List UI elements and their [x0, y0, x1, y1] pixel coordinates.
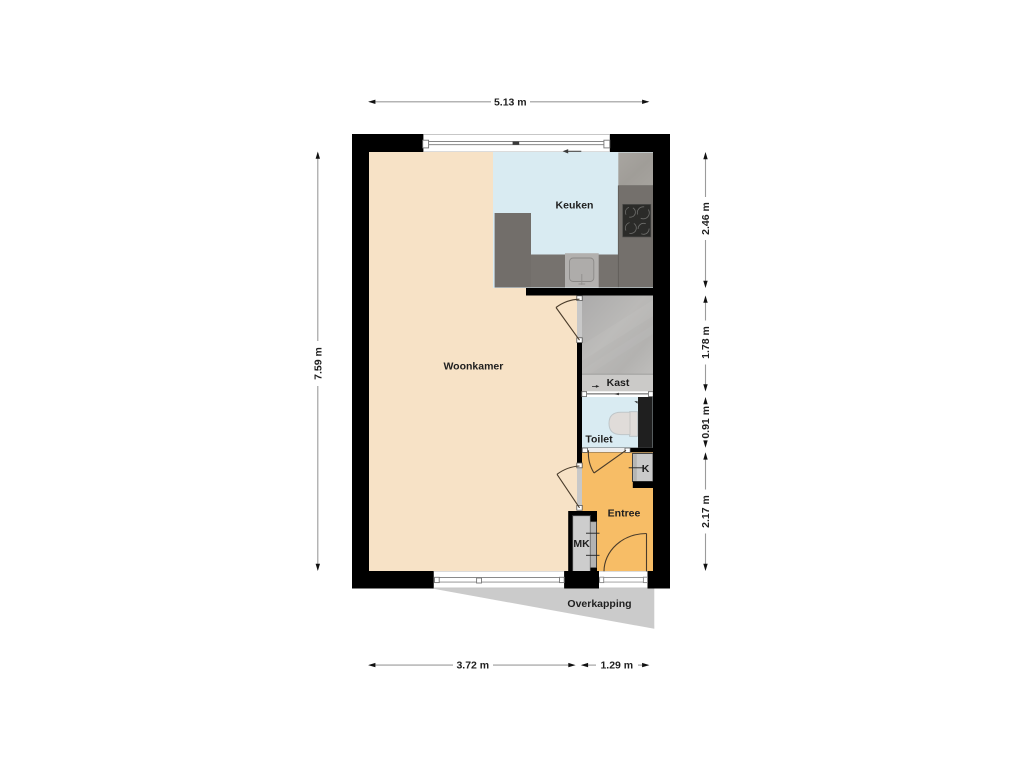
svg-text:Toilet: Toilet [585, 434, 613, 446]
svg-text:1.78 m: 1.78 m [700, 326, 712, 359]
svg-text:MK: MK [573, 538, 590, 550]
svg-text:K: K [642, 463, 650, 475]
svg-text:2.46 m: 2.46 m [700, 202, 712, 235]
svg-text:5.13 m: 5.13 m [494, 96, 527, 108]
svg-text:Kast: Kast [607, 377, 630, 389]
svg-text:Woonkamer: Woonkamer [443, 361, 503, 373]
svg-text:1.29 m: 1.29 m [600, 660, 633, 672]
svg-text:7.59 m: 7.59 m [313, 347, 325, 380]
svg-text:Keuken: Keuken [556, 200, 594, 212]
svg-text:3.72 m: 3.72 m [456, 660, 489, 672]
svg-text:Overkapping: Overkapping [567, 598, 631, 610]
svg-text:2.17 m: 2.17 m [700, 495, 712, 528]
svg-text:0.91 m: 0.91 m [700, 406, 712, 439]
svg-text:Entree: Entree [608, 508, 641, 520]
